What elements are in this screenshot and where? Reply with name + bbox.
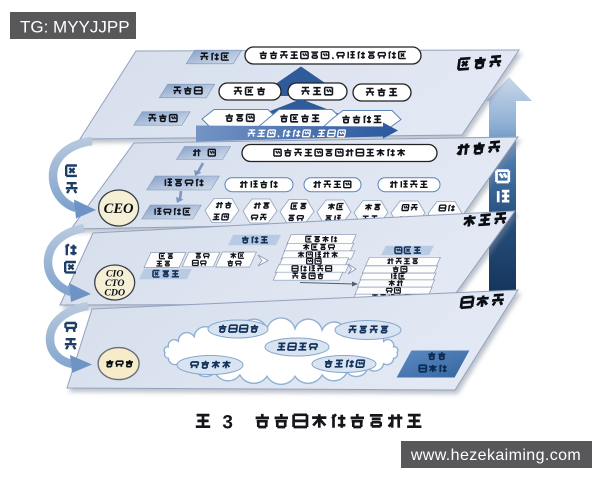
svg-text:CDO: CDO	[104, 288, 125, 299]
svg-text:CEO: CEO	[104, 201, 134, 217]
svg-text:TG: MYYJJPP: TG: MYYJJPP	[20, 18, 130, 37]
svg-text:3: 3	[222, 413, 233, 434]
svg-text:www.hezekaiming.com: www.hezekaiming.com	[410, 447, 581, 464]
